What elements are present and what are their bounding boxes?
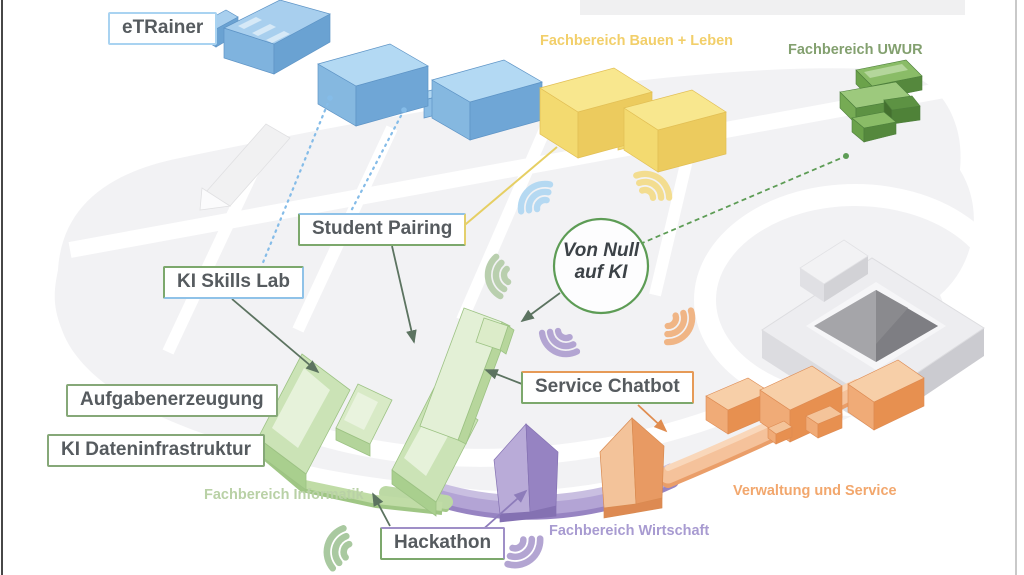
left-edge-line [1, 0, 3, 575]
wifi-signal-icon-hackathon-green [322, 526, 352, 571]
label-aufgabenerzeugung: Aufgabenerzeugung [66, 384, 278, 417]
label-student-pairing: Student Pairing [298, 213, 466, 246]
label-service-chatbot: Service Chatbot [521, 371, 694, 404]
hub-label-line1: Von Null [552, 240, 650, 262]
right-edge-line [1015, 0, 1017, 575]
label-hackathon: Hackathon [380, 527, 505, 560]
label-ki-dateninfrastruktur: KI Dateninfrastruktur [47, 434, 265, 467]
label-etrainer: eTRainer [108, 12, 217, 45]
hub-label-line2: auf KI [552, 262, 650, 284]
top-gray-strip [580, 0, 965, 15]
campus-map: eTRainer Student Pairing KI Skills Lab A… [0, 0, 1024, 575]
area-label-uwur: Fachbereich UWUR [788, 42, 923, 58]
label-ki-skills-lab: KI Skills Lab [163, 266, 304, 299]
area-label-verwaltung-service: Verwaltung und Service [733, 483, 897, 499]
area-label-bauen-leben: Fachbereich Bauen + Leben [540, 33, 733, 49]
wifi-signal-icon-hackathon-purple [502, 531, 547, 572]
area-label-informatik: Fachbereich Informatik [204, 487, 364, 503]
building-etrainer-steps [204, 0, 330, 74]
hub-label: Von Null auf KI [552, 240, 650, 284]
area-label-wirtschaft: Fachbereich Wirtschaft [549, 523, 709, 539]
